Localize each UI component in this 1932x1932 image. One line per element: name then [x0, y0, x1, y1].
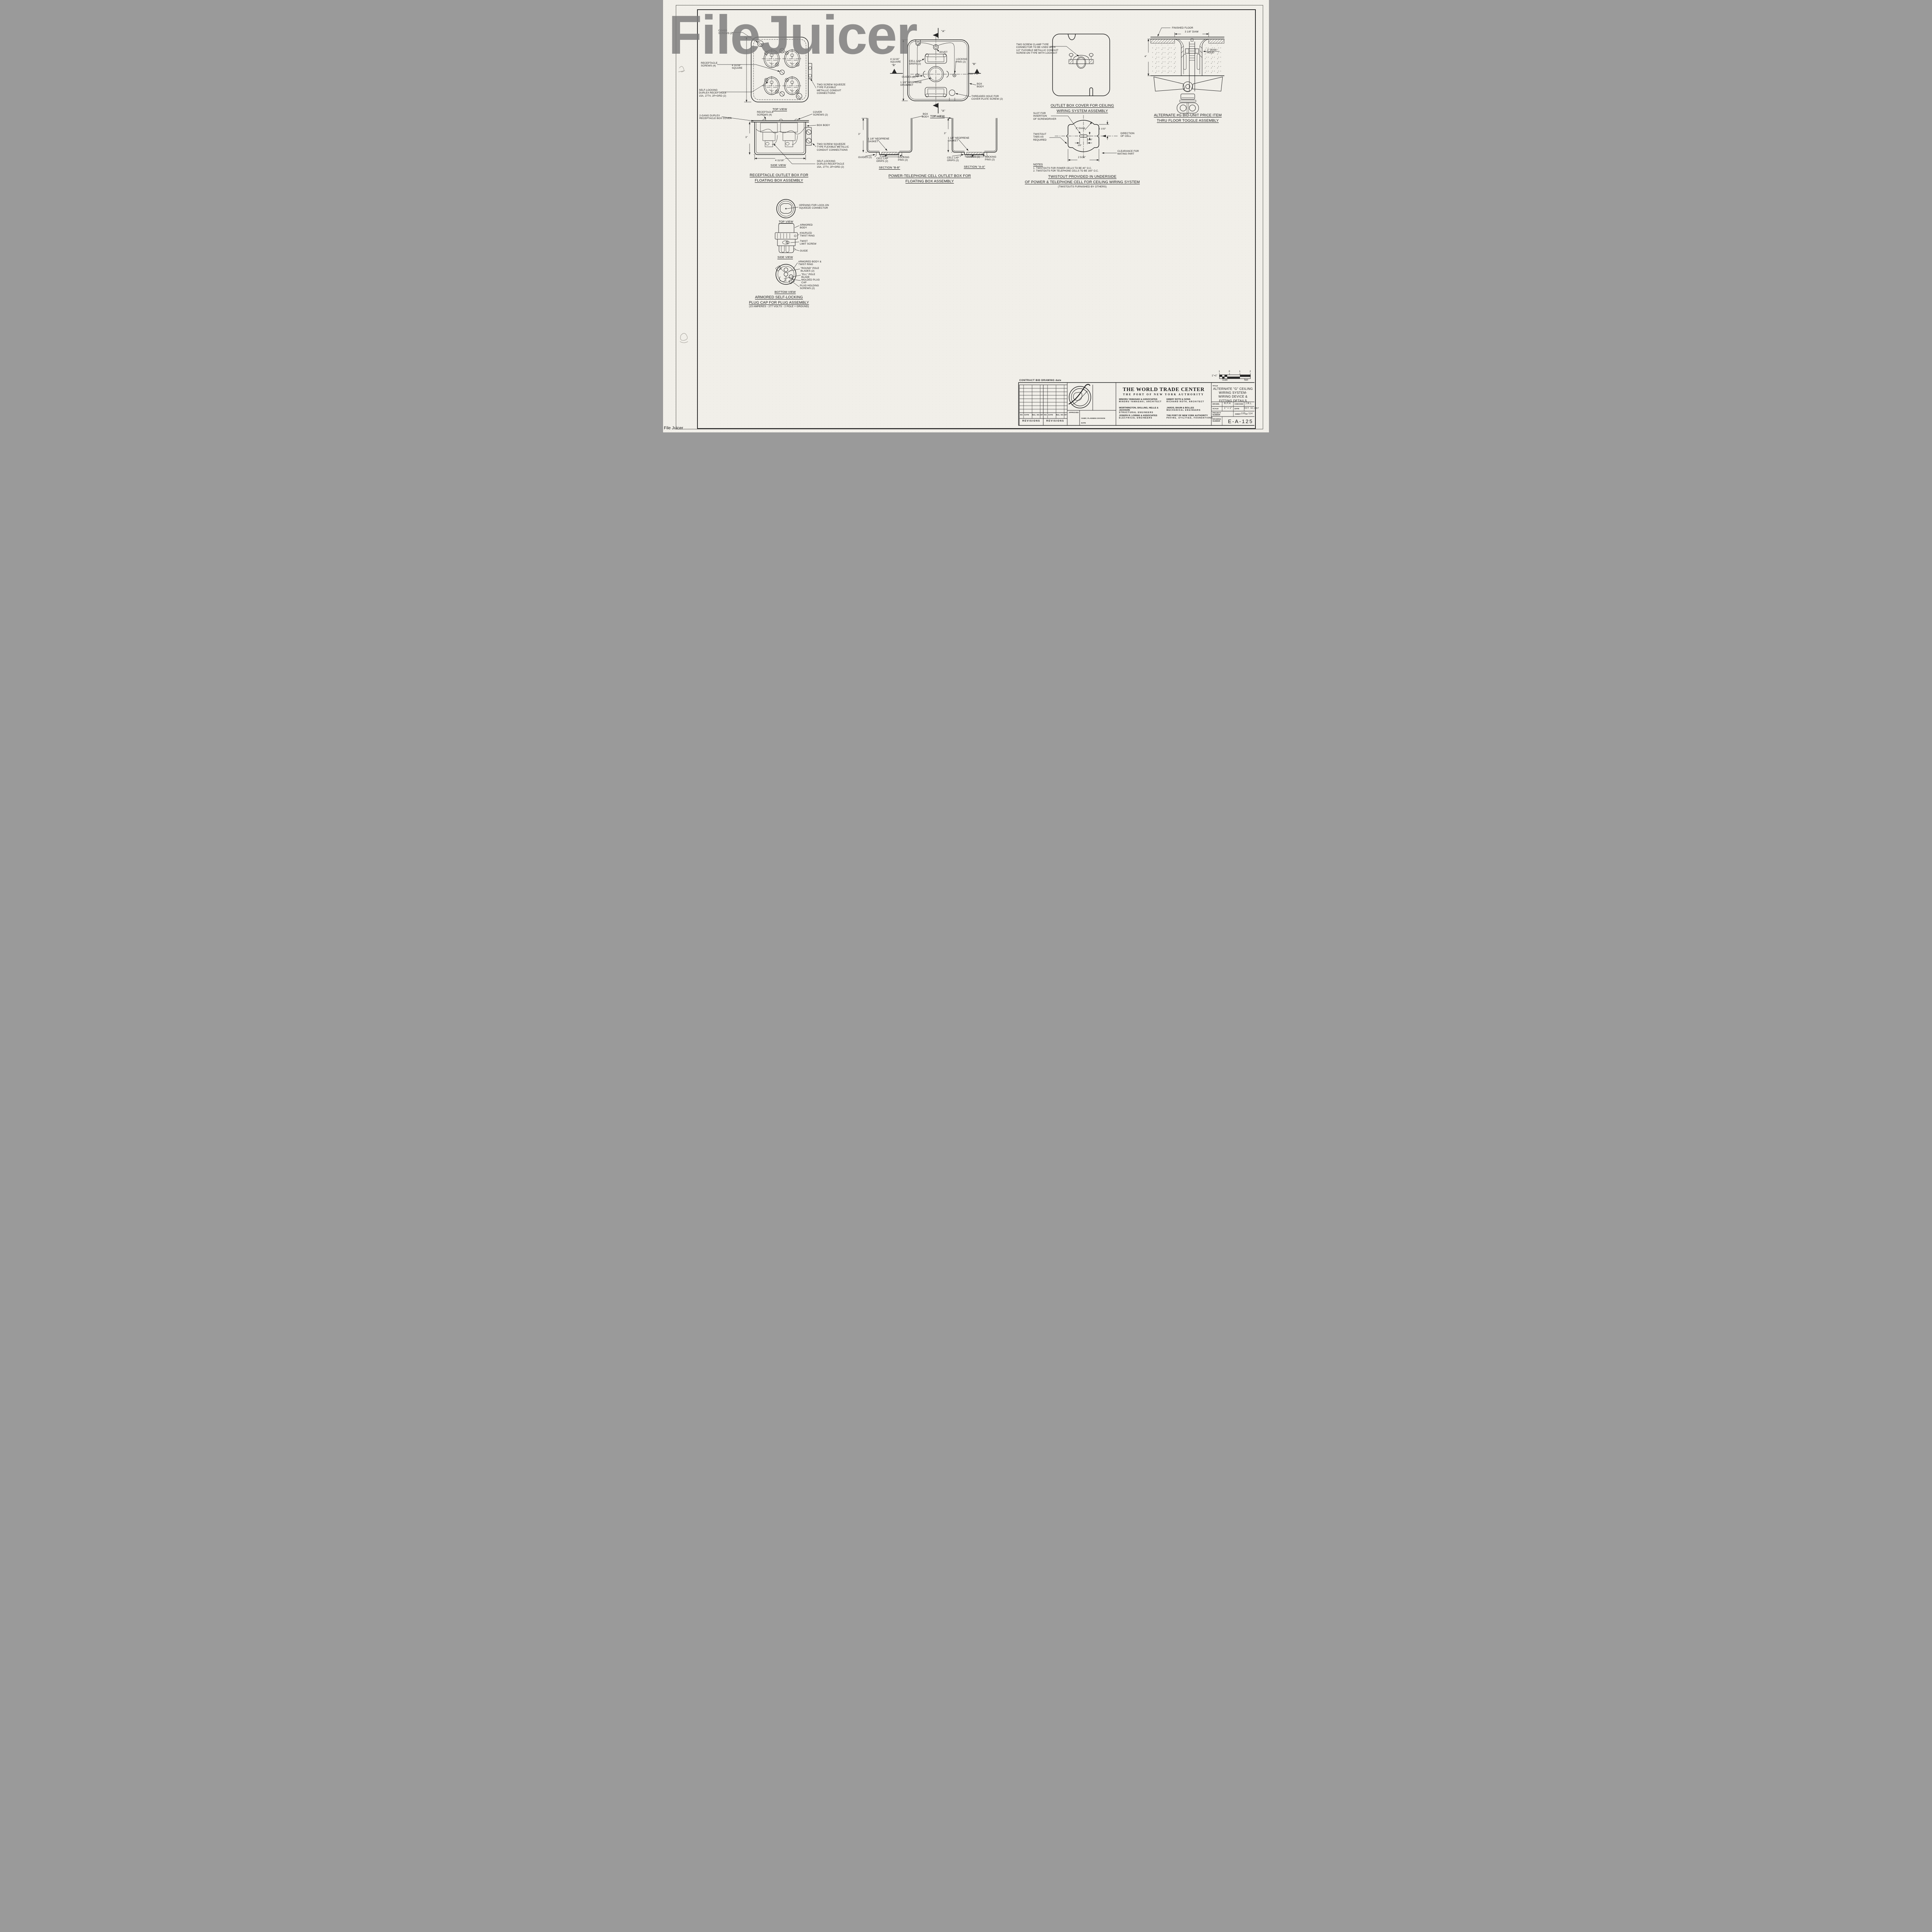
locking-pins-label-3: LOCKING PINS (2)	[985, 156, 996, 162]
conduit-connection-side-label: TWO SCREW SQUEEZE TYPE FLEXIBLE METALLIC…	[817, 143, 849, 151]
locking-pins-label: LOCKING PINS (2)	[956, 58, 967, 64]
dim-2in-diam: 2" DIAM	[1076, 127, 1085, 130]
guides-label: GUIDES (2)	[902, 76, 915, 78]
revision-column-header: BUL. NO.	[1032, 414, 1040, 416]
locking-pins-label-2: LOCKING PINS (2)	[898, 156, 909, 162]
receptacle-screws-side-label: RECEPTACLE SCREWS (4)	[757, 111, 774, 117]
section-mark-b-right: "B"	[972, 63, 976, 66]
detail-title: FLOATING BOX ASSEMBLY	[755, 179, 803, 183]
dim-3in-1: 3"	[745, 136, 748, 139]
revision-column-header: NO.	[1044, 414, 1047, 416]
detail-title: FLOATING BOX ASSEMBLY	[905, 179, 954, 184]
firm-role: MINORU YAMASAKI, ARCHITECT	[1119, 401, 1165, 403]
round-pole-blades-label: "ROUND" POLE BLADES (2)	[801, 267, 819, 273]
scale-bar-tick: 0	[1229, 371, 1230, 373]
self-locking-receptacle-label: SELF-LOCKING DUPLEX RECEPTACLE 15A, 277V…	[699, 89, 726, 97]
scale-value: 1" = 1"	[1224, 407, 1232, 410]
drawing-number-label: DRAWING NUMBER	[1213, 418, 1223, 422]
firm-role: RICHARD ROTH, ARCHITECT	[1167, 401, 1213, 403]
guides-label-3: GUIDES (2)	[966, 156, 980, 158]
box-body-label-2: BOX BODY	[977, 83, 984, 88]
dim-1-1-32: 1 1/32"	[1099, 128, 1106, 130]
firm-role: MECHANICAL ENGINEERS	[1167, 409, 1213, 412]
detail-title: ALTERNATE #G BID-UNIT PRICE ITEM	[1154, 113, 1221, 117]
checked-label: CHECKED	[1235, 403, 1243, 405]
guide-label: GUIDE	[800, 250, 808, 252]
firm-entry: JAROS, BAUM & BOLLESMECHANICAL ENGINEERS	[1167, 407, 1213, 412]
armored-body-label: ARMORED BODY	[800, 224, 813, 230]
date-label: DATE	[1235, 408, 1239, 410]
rivet-label: RIVET	[940, 51, 947, 54]
cell-lap-grips-label-3: CELL LAP GRIPS (2)	[947, 156, 959, 162]
firm-name: WORTHINGTON, SKILLING, HELLE & JACKSON	[1119, 407, 1165, 412]
sheet-label: SHEET	[1235, 413, 1241, 415]
scale-word: scale	[1222, 379, 1228, 381]
firm-role: STRUCTURAL ENGINEERS	[1119, 412, 1165, 414]
clamp-connector-label: TWO SCREW CLAMP TYPE CONNECTOR TO BE USE…	[1016, 43, 1058, 55]
project-number-label: PROJECT NUMBER	[1213, 412, 1223, 416]
firm-entry: EMERY ROTH & SONSRICHARD ROTH, ARCHITECT	[1167, 398, 1213, 403]
scale-bar-tick: 2	[1250, 371, 1251, 373]
dim-3in-2: 3"	[858, 133, 861, 136]
detail-title: POWER-TELEPHONE CELL OUTLET BOX FOR	[888, 174, 971, 178]
feet-word: feet	[1244, 379, 1248, 381]
sheet-total: 114	[1248, 413, 1253, 415]
contract-bid-drawing-line: CONTRACT BID DRAWING date	[1019, 379, 1061, 382]
sheet-of-label: OF	[1245, 413, 1248, 415]
twistout-tabs-label: TWISTOUT TABS AS REQUIRED	[1033, 133, 1046, 141]
firm-entry: MINORU YAMASAKI & ASSOCIATESMINORU YAMAS…	[1119, 398, 1165, 403]
dim-2in-diam-hole: 2" DIAM HOLE	[1207, 49, 1216, 54]
grommet-label: 1 1/8" NEOPRENE GROMMET	[900, 81, 922, 87]
detail-title: PLUG CAP FOR PLUG ASSEMBLY	[749, 301, 809, 305]
dim-1-16: 1/16"	[1087, 139, 1092, 141]
cover-screws-side-label: COVER SCREWS (2)	[813, 111, 828, 117]
scale-ratio: 1"=1"	[1212, 375, 1217, 377]
section-mark-a-bottom: "A"	[941, 110, 945, 113]
knurled-ring-label: KNURLED TWIST RING	[800, 232, 815, 238]
firm-role: PAVING, UTILITIES, FOUNDATIONS	[1167, 417, 1213, 419]
detail-subtitle: (TWISTOUTS FURNISHED BY OTHERS)	[1058, 185, 1107, 189]
detail-subtitle: (15 AMPERES - 277 VOLTS - 2 POLE + GROUN…	[749, 305, 809, 308]
box-body-label-3: BOX BODY	[922, 113, 929, 119]
direction-of-cell-label: DIRECTION OF CELL	[1121, 132, 1134, 138]
blueprint-sheet: FileJuicer File Juicer	[663, 0, 1269, 432]
firm-role: ELECTRICAL ENGINEERS	[1119, 417, 1165, 419]
scale-bar-tick: 1	[1239, 371, 1240, 373]
box-body-label-1: BOX BODY	[817, 124, 830, 127]
view-title-top-view-2: TOP VIEW	[930, 115, 945, 118]
firm-entry: JOSEPH R. LORING & ASSOCIATESELECTRICAL …	[1119, 415, 1165, 419]
project-authority: THE PORT OF NEW YORK AUTHORITY	[1116, 393, 1211, 396]
notes-body: 1. TWISTOUTS FOR POWER CELLS TO BE 40" O…	[1033, 167, 1099, 173]
cell-lap-grips-label-2: CELL LAP GRIPS (2)	[876, 157, 888, 163]
guides-label-2: GUIDES (2)	[858, 156, 872, 159]
notes-heading: NOTES	[1033, 163, 1043, 167]
conduit-connection-label: TWO SCREW SQUEEZE TYPE FLEXIBLE METALLIC…	[817, 83, 845, 95]
drawn-label: DRAWN.	[1213, 403, 1220, 405]
title-label: TITLE	[1213, 385, 1218, 387]
dim-3in-3: 3"	[944, 132, 946, 135]
revision-column-header: BY	[1041, 414, 1043, 416]
gasket-label-1: 1 1/8" NEOPRENE GASKET	[868, 138, 889, 143]
date-value: OCT. 16,1967	[1244, 407, 1259, 410]
detail-title: THRU FLOOR TOGGLE ASSEMBLY	[1157, 119, 1219, 123]
checked-value: J.R.L.	[1245, 403, 1252, 405]
gang-cover-label: 2-GANG DUPLEX RECEPTACLE BOX COVER	[699, 114, 732, 120]
opening-lock-on-label: OPENING FOR LOCK-ON SQUEEZE CONNECTOR	[799, 204, 829, 210]
drawing-number: E-A-125	[1228, 418, 1253, 424]
detail-title: WIRING SYSTEM ASSEMBLY	[1057, 109, 1108, 113]
clearance-label: CLEARANCE FOR MATING PART	[1117, 150, 1139, 156]
scale-bar-tick: 1	[1219, 371, 1220, 373]
ell-pole-blade-label: "ELL" POLE BLADE	[801, 273, 815, 279]
revision-column-header: DATE	[1048, 414, 1053, 416]
sheet-title: ALTERNATE "G" CEILING WIRING SYSTEM- WIR…	[1213, 387, 1253, 403]
slot-screwdriver-label: SLOT FOR INSERTION OF SCREWDRIVER	[1033, 112, 1056, 121]
self-locking-side-label: SELF-LOCKING DUPLEX RECEPTACLE 15A, 277V…	[817, 160, 844, 168]
revision-column-header: BY	[1065, 414, 1067, 416]
revision-column-header: DATE	[1024, 414, 1029, 416]
filejuicer-corner-note: File Juicer	[664, 426, 683, 430]
finished-floor-label: FINISHED FLOOR	[1172, 27, 1193, 29]
dim-2-5-16: 2 5/16"	[1078, 156, 1086, 159]
view-title-top-view-1: TOP VIEW	[772, 108, 787, 111]
detail-title: ARMORED SELF-LOCKING	[755, 295, 803, 299]
dim-4-11-16: 4 11/16"	[775, 159, 784, 162]
twist-limit-screw-label: TWIST LIMIT SCREW	[800, 240, 816, 246]
view-title-side-view-2: SIDE VIEW	[777, 256, 793, 259]
drawn-value: R.F.H.	[1224, 403, 1231, 405]
revision-column-header: BUL. NO.	[1056, 414, 1064, 416]
sheet-number: 105	[1241, 413, 1245, 415]
detail-title: OUTLET BOX COVER FOR CEILING	[1051, 104, 1114, 108]
firm-entry: WORTHINGTON, SKILLING, HELLE & JACKSONST…	[1119, 407, 1165, 414]
revision-column-header: NO.	[1020, 414, 1023, 416]
revisions-label-1: REVISIONS	[1022, 420, 1040, 422]
detail-title: RECEPTACLE OUTLET BOX FOR	[750, 173, 808, 177]
gasket-label-2: 1 1/8" NEOPRENE GASKET	[948, 137, 969, 143]
filejuicer-watermark: FileJuicer	[668, 8, 917, 63]
dim-3-1-8-diam: 3 1/8" DIAM	[1185, 31, 1198, 33]
plug-holding-screws-label: PLUG HOLDING SCREWS (2)	[800, 284, 819, 290]
view-title-side-view-1: SIDE VIEW	[770, 164, 786, 167]
view-title-bottom-view: BOTTOM VIEW	[775, 291, 796, 294]
section-mark-a-top: "A"	[941, 30, 945, 33]
dim-4in: 4"	[1145, 55, 1147, 58]
scale-label: SCALE	[1213, 408, 1219, 410]
approved-label: APPROVED	[1069, 412, 1079, 413]
firm-entry: THE PORT OF NEW YORK AUTHORITYPAVING, UT…	[1167, 415, 1213, 419]
section-title-aa: SECTION "A-A"	[964, 165, 985, 169]
detail-title: TWISTOUT PROVIDED IN UNDERSIDE	[1048, 175, 1117, 179]
armored-body-twist-ring-label: ARMORED BODY & TWIST RING	[798, 260, 821, 266]
detail-title: OF POWER & TELEPHONE CELL FOR CEILING WI…	[1025, 180, 1139, 184]
dim-3-8: 3/8"	[1078, 145, 1082, 147]
project-title: THE WORLD TRADE CENTER	[1116, 386, 1211, 393]
approval-date-label: DATE	[1081, 422, 1086, 424]
molded-plug-cap-label: MOLDED PLUG CAP	[801, 279, 820, 284]
revisions-label-2: REVISIONS	[1046, 420, 1064, 422]
section-title-bb: SECTION "B-B"	[879, 166, 900, 170]
view-title-top-view-3: TOP VIEW	[779, 220, 793, 224]
threaded-hole-label: THREADED HOLE FOR COVER PLATE SCREW (2)	[971, 95, 1003, 101]
chief-planning-division-label: CHIEF, PLANNING DIVISION	[1081, 417, 1105, 419]
